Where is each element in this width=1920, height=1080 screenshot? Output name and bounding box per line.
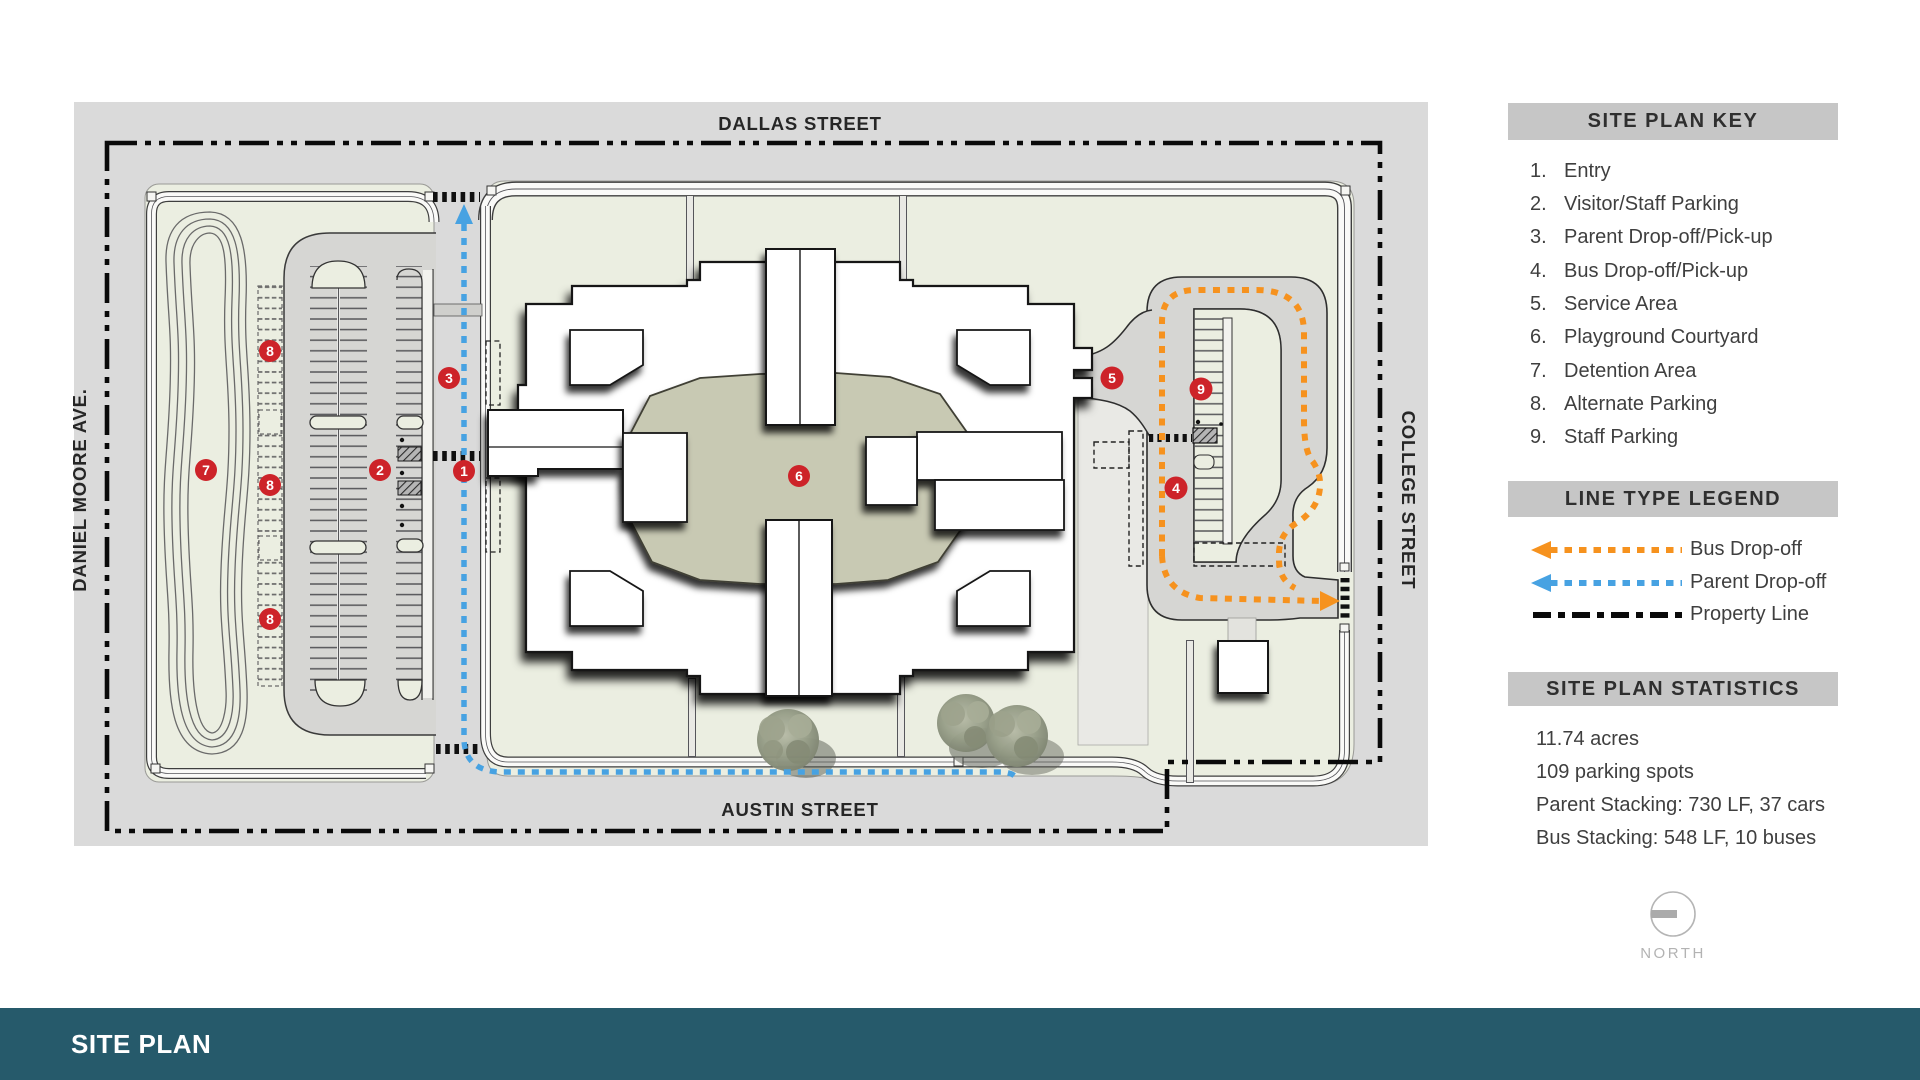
- svg-text:AUSTIN STREET: AUSTIN STREET: [721, 799, 878, 820]
- svg-text:8: 8: [266, 477, 274, 493]
- svg-text:6: 6: [795, 468, 803, 484]
- svg-text:9: 9: [1197, 381, 1205, 397]
- svg-text:2: 2: [376, 462, 384, 478]
- svg-text:1: 1: [460, 463, 468, 479]
- svg-text:DALLAS STREET: DALLAS STREET: [718, 113, 882, 134]
- svg-text:COLLEGE STREET: COLLEGE STREET: [1398, 411, 1419, 590]
- svg-text:8: 8: [266, 611, 274, 627]
- svg-text:NORTH: NORTH: [1640, 945, 1706, 962]
- svg-text:3: 3: [445, 370, 453, 386]
- svg-text:4: 4: [1172, 480, 1180, 496]
- svg-text:8: 8: [266, 343, 274, 359]
- svg-text:DANIEL MOORE AVE.: DANIEL MOORE AVE.: [69, 388, 90, 591]
- svg-text:7: 7: [202, 462, 210, 478]
- svg-text:5: 5: [1108, 370, 1116, 386]
